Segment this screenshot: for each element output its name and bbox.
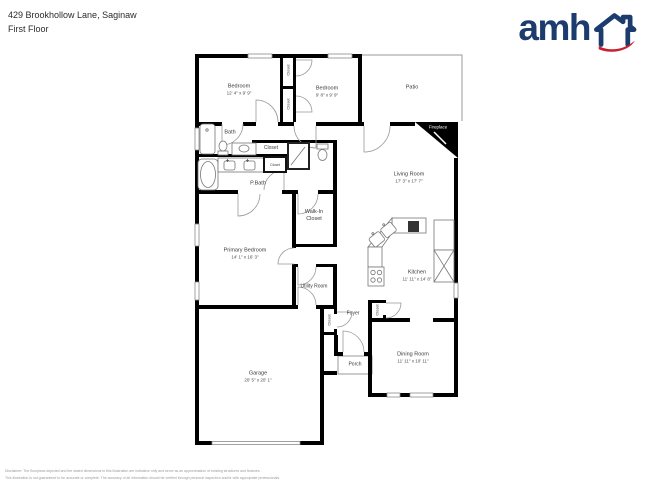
- disclaimer: Disclaimer: The floorplans depicted and …: [5, 469, 621, 482]
- floorplan-graphics: [0, 0, 650, 488]
- garden-tub: [198, 159, 218, 190]
- disclaimer-line-1: Disclaimer: The floorplans depicted and …: [5, 469, 621, 476]
- label-utility-room: Utility Room: [301, 284, 328, 291]
- double-vanity: [218, 158, 264, 172]
- bath-sink: [232, 143, 256, 155]
- label-closet-mid: Closet: [286, 98, 291, 109]
- outdoor-outlines: [338, 55, 462, 374]
- label-bedroom-2: Bedroom 9' 8" x 9' 9": [316, 86, 338, 99]
- label-foyer: Foyer: [347, 311, 360, 318]
- label-living-room: Living Room 17' 3" x 17' 7": [394, 172, 425, 185]
- stove: [368, 267, 384, 286]
- disclaimer-line-2: This illustration is not guaranteed to b…: [5, 475, 621, 482]
- label-garage: Garage 20' 5" x 20' 1": [244, 371, 271, 384]
- label-kitchen: Kitchen 11' 11" x 14' 8": [402, 270, 431, 283]
- pantry: [434, 220, 454, 282]
- label-patio: Patio: [406, 85, 419, 92]
- pbath-toilet: [317, 144, 328, 161]
- kitchen-counter: [367, 218, 426, 267]
- label-closet-kitchen: Closet: [375, 304, 380, 315]
- label-pbath: P.Bath: [250, 181, 266, 188]
- label-primary-bedroom: Primary Bedroom 14' 1" x 16' 3": [224, 248, 267, 261]
- label-closet-foyer: Closet: [326, 314, 331, 325]
- label-dining-room: Dining Room 11' 11" x 10' 11": [397, 352, 429, 365]
- fixtures: [198, 124, 454, 286]
- label-closet-hall: Closet: [264, 145, 278, 151]
- label-closet-small: Closet: [270, 163, 280, 167]
- label-porch: Porch: [348, 362, 361, 369]
- label-fireplace: Fireplace: [429, 125, 448, 130]
- shower: [288, 143, 309, 169]
- label-walkin-closet: Walk-In Closet: [305, 209, 323, 223]
- label-bath: Bath: [224, 130, 235, 137]
- label-closet-top: Closet: [286, 64, 291, 75]
- label-bedroom-1: Bedroom 12' 4" x 9' 9": [227, 84, 252, 97]
- floorplan-page: 429 Brookhollow Lane, Saginaw First Floo…: [0, 0, 650, 488]
- garage-door: [212, 442, 300, 445]
- toilet: [218, 141, 228, 155]
